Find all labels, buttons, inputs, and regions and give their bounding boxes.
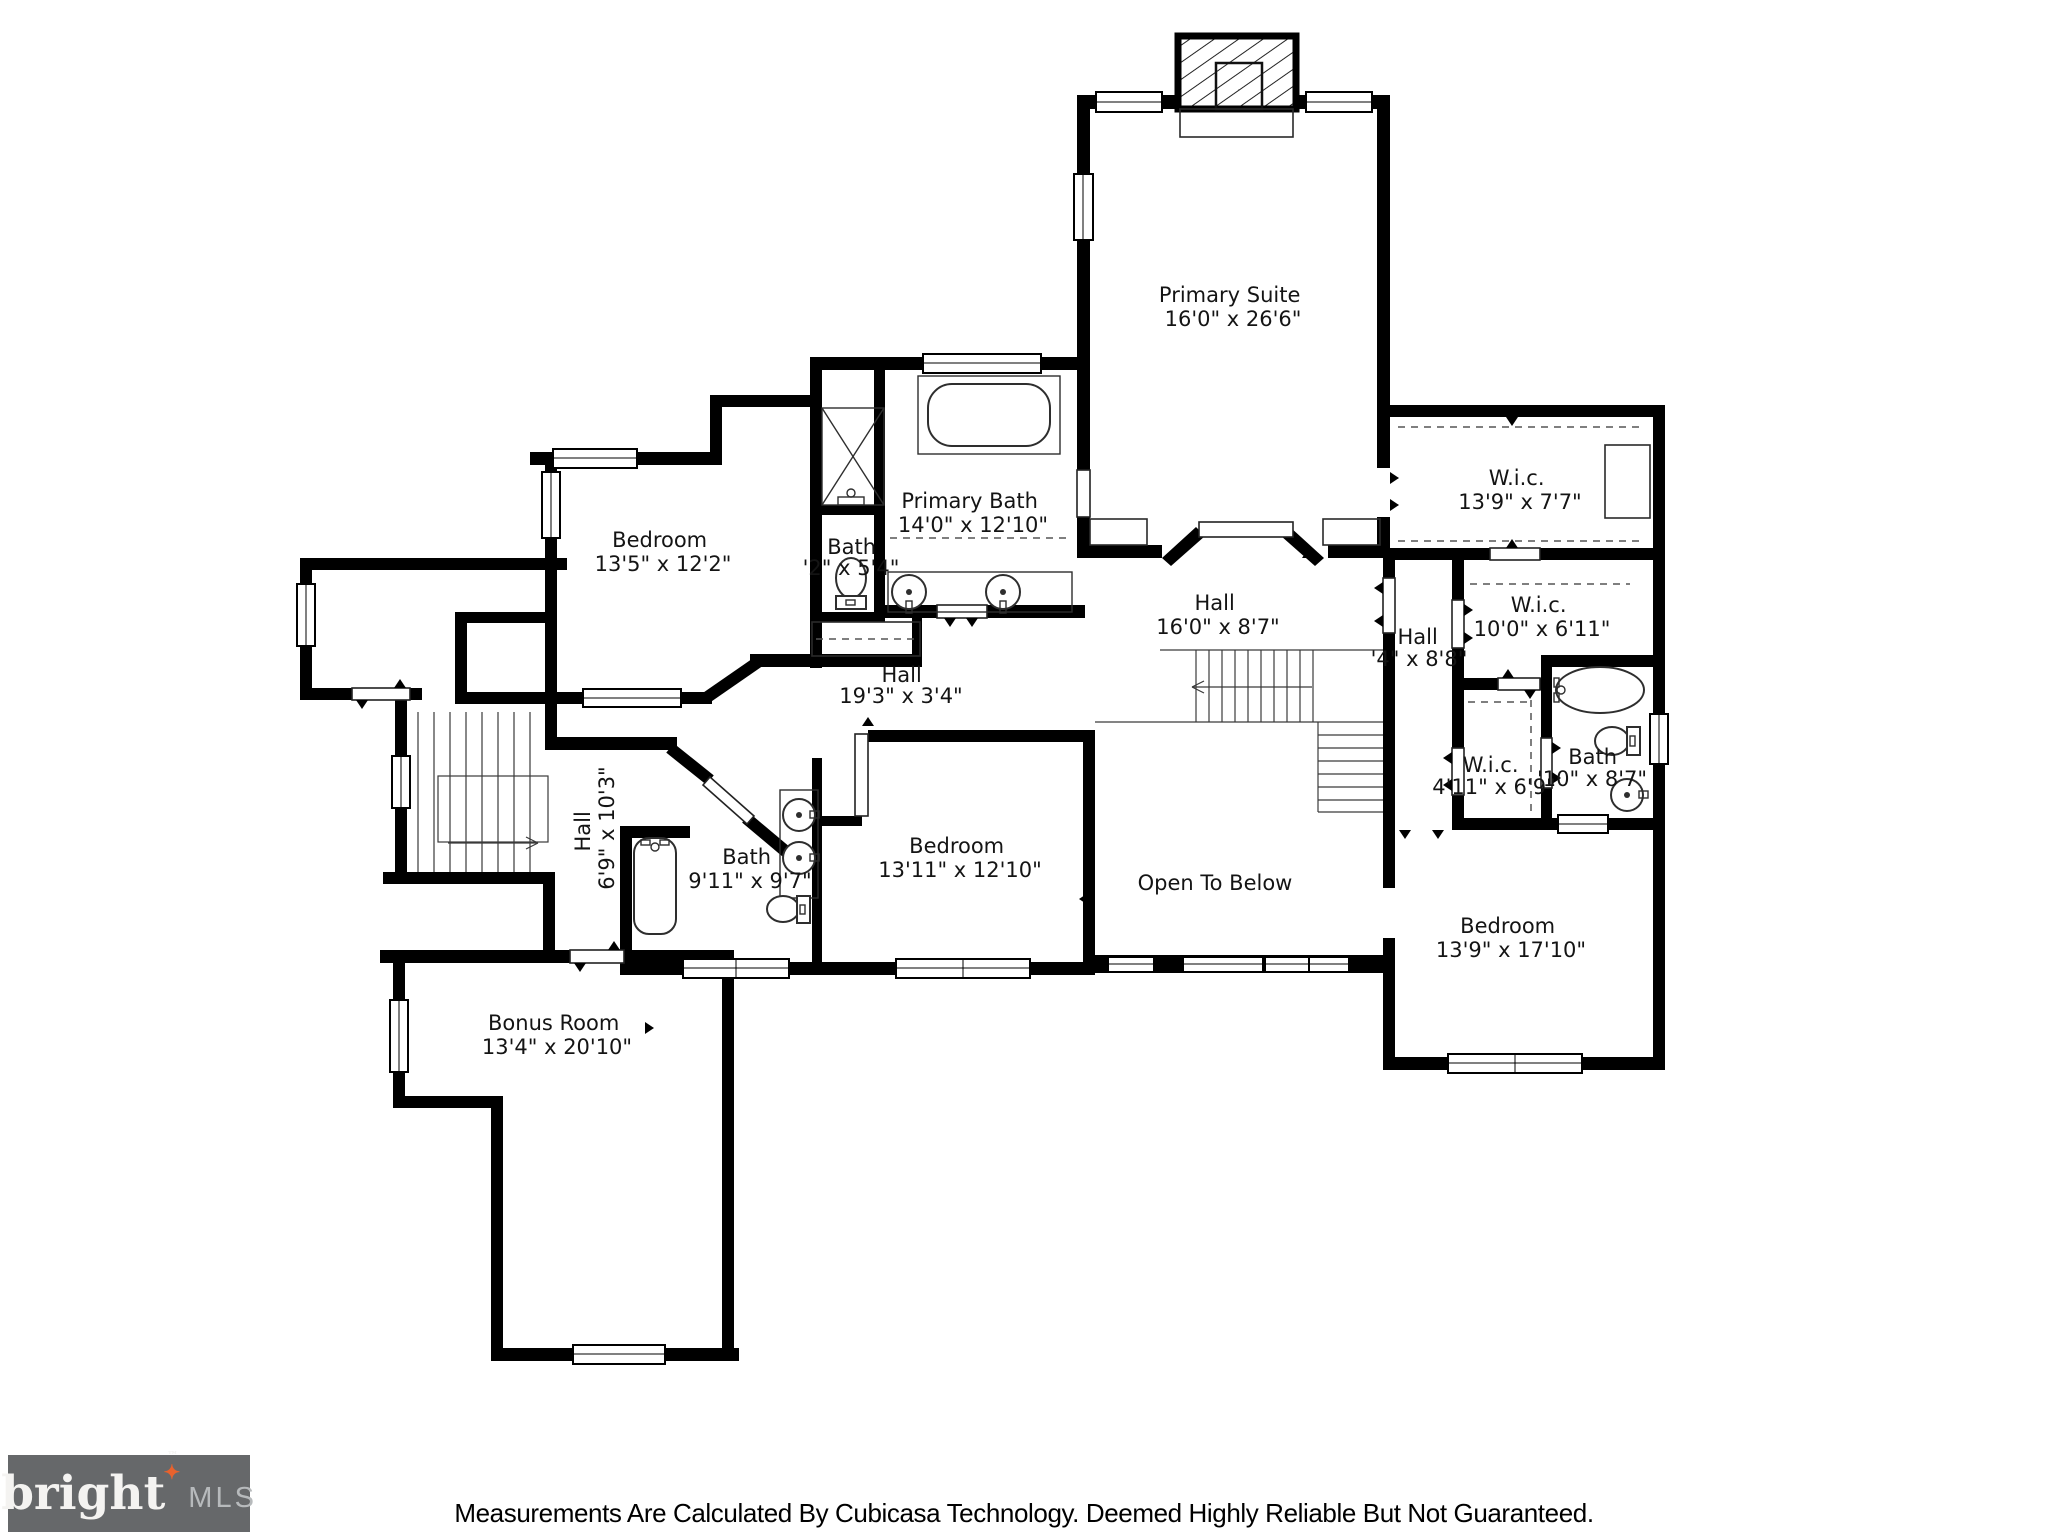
floor-plan-page: Primary Suite 16'0" x 26'6" W.i.c. 13'9"… [0, 0, 2048, 1536]
room-label-bedroom-middle: Bedroom 13'11" x 12'10" [878, 834, 1042, 882]
window [583, 689, 681, 707]
star-icon: ✦ [164, 1462, 181, 1482]
window [297, 584, 315, 646]
window [573, 1345, 665, 1364]
room-labels: Primary Suite 16'0" x 26'6" W.i.c. 13'9"… [482, 283, 1647, 1059]
window [1096, 92, 1162, 112]
room-label-open-below: Open To Below [1138, 871, 1293, 895]
bathtub-icon [634, 838, 676, 934]
window [1074, 174, 1093, 240]
window [392, 756, 410, 808]
bathtub-icon [918, 376, 1060, 454]
room-label-wic-right: W.i.c. 10'0" x 6'11" [1474, 593, 1611, 641]
window [542, 472, 560, 538]
room-label-bedroom-left: Bedroom 13'5" x 12'2" [595, 528, 732, 576]
room-label-bedroom-right: Bedroom 13'9" x 17'10" [1436, 914, 1586, 962]
window [1650, 714, 1668, 764]
window [553, 449, 637, 468]
room-label-bonus-room: Bonus Room 13'4" x 20'10" [482, 1011, 632, 1059]
door-leaves [352, 470, 1552, 963]
toilet-icon [767, 896, 810, 923]
bathtub-icon [1554, 667, 1644, 713]
window [390, 1000, 408, 1072]
window [1309, 957, 1349, 972]
fireplace-icon [1178, 36, 1296, 137]
room-label-primary-suite: Primary Suite 16'0" x 26'6" [1159, 283, 1307, 331]
walls [300, 95, 1665, 1361]
window [1108, 957, 1154, 972]
stairs-left [418, 712, 548, 872]
window [1558, 815, 1608, 833]
window [923, 354, 1041, 373]
trademark-symbol: ™ [167, 1449, 178, 1462]
floor-plan: Primary Suite 16'0" x 26'6" W.i.c. 13'9"… [0, 0, 2048, 1536]
disclaimer-text: Measurements Are Calculated By Cubicasa … [0, 1498, 2048, 1529]
window [1306, 92, 1372, 112]
stairs-center [1095, 650, 1383, 812]
window [1448, 1054, 1582, 1073]
window [683, 959, 789, 978]
room-label-hall-center: Hall 16'0" x 8'7" [1156, 591, 1279, 639]
room-label-wic-top: W.i.c. 13'9" x 7'7" [1458, 466, 1581, 514]
window [896, 959, 1030, 978]
window [1183, 957, 1263, 972]
room-label-hall-long: Hall 19'3" x 3'4" [839, 663, 962, 708]
room-label-hall-left: Hall 6'9" x 10'3" [571, 766, 619, 889]
window [1265, 957, 1309, 972]
room-label-primary-bath: Primary Bath 14'0" x 12'10" [898, 489, 1048, 537]
